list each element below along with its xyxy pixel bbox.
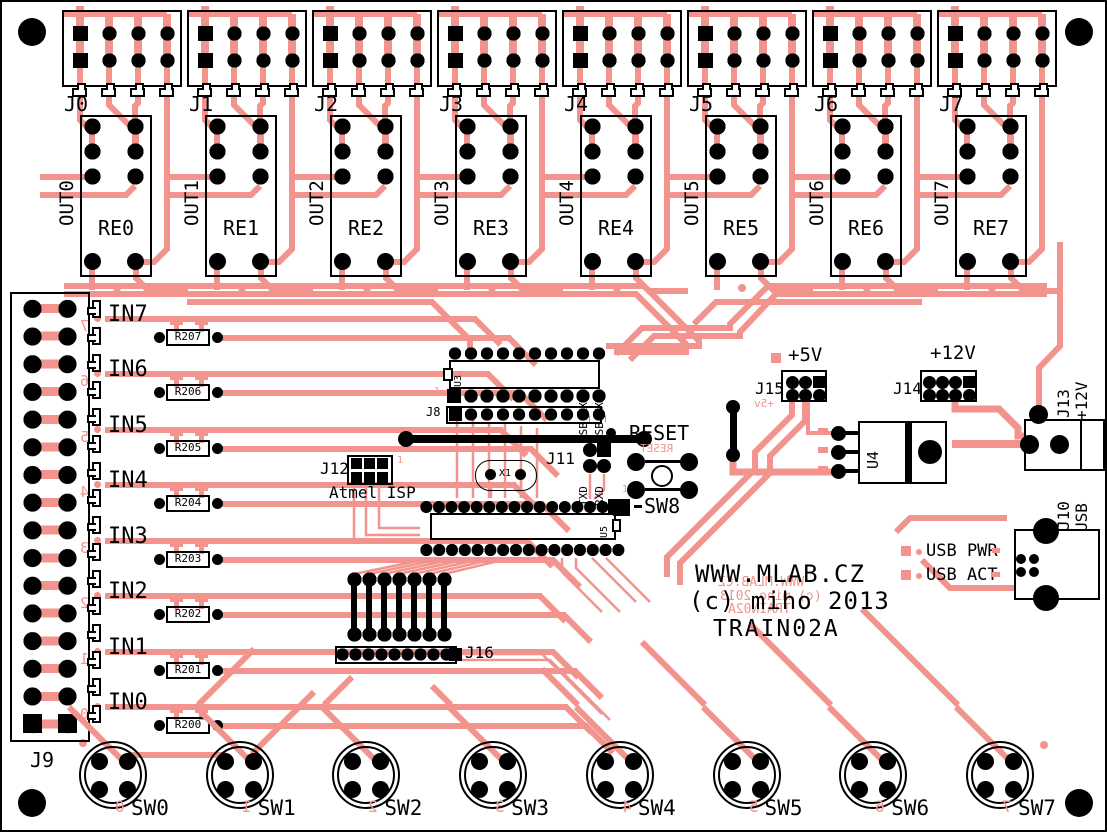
relay-pad	[1002, 253, 1019, 270]
switch-pad	[217, 753, 234, 770]
relay-pads	[834, 114, 851, 189]
relay-channel-block: J3 RE3 OUT3	[437, 2, 562, 302]
connector-pads	[345, 53, 432, 68]
resistor-pad	[212, 387, 223, 398]
jumper-pad	[398, 431, 414, 447]
switch-pad	[879, 781, 896, 798]
u3-pin1-marker: 1	[434, 387, 440, 397]
mcu-notch	[612, 519, 621, 532]
smd-pad	[170, 597, 183, 602]
resistor-pad	[154, 665, 165, 676]
j10-signal-pad	[1029, 554, 1039, 564]
pin-stub	[92, 624, 101, 642]
relay-pad	[627, 253, 644, 270]
u4-pad	[831, 464, 846, 479]
relay-pad	[84, 253, 101, 270]
pin-stub	[92, 543, 101, 561]
switch-block: 2 SW2	[332, 741, 464, 832]
j11-pad	[583, 443, 597, 457]
pin-stub	[505, 88, 520, 97]
output-label: OUT0	[58, 138, 78, 226]
resistor-pad	[212, 498, 223, 509]
pin-stub	[755, 88, 770, 97]
via	[606, 428, 616, 438]
connector-pads	[345, 26, 432, 41]
pin-stub	[130, 88, 145, 97]
smd-pad	[170, 431, 183, 436]
mounting-hole	[1065, 18, 1093, 46]
output-label: OUT4	[558, 138, 578, 226]
output-terminal-block	[812, 10, 932, 87]
j10-signal-pad	[1016, 554, 1026, 564]
connector-pad	[198, 53, 213, 68]
j11-label: J11	[546, 451, 575, 468]
output-terminal-block	[312, 10, 432, 87]
pin-stub	[226, 88, 241, 97]
pin-stub	[92, 300, 101, 318]
j15-pad	[786, 376, 799, 389]
j10-outline	[1014, 529, 1100, 600]
resistor-label: R205	[175, 441, 202, 454]
reset-pad	[680, 481, 698, 499]
connector-pads	[95, 26, 182, 41]
j8-label: J8	[426, 406, 440, 419]
j16-label: J16	[465, 645, 494, 662]
sw8-pin1-marker: 1	[622, 485, 628, 495]
relay-pads	[959, 114, 976, 189]
switch-pad	[372, 753, 389, 770]
pin-stub	[92, 435, 101, 453]
switch-label: SW4	[638, 797, 676, 819]
output-label: OUT2	[308, 138, 328, 226]
smd-pad	[195, 597, 208, 602]
pin-stub	[92, 327, 101, 345]
x1-pad	[515, 469, 526, 480]
wire-jumper-bars	[351, 580, 447, 634]
switch-pad	[625, 781, 642, 798]
title-line1: WWW.MLAB.CZ	[695, 562, 865, 587]
j14-pad	[949, 376, 962, 389]
relay-pad	[752, 253, 769, 270]
pin-stub	[409, 88, 424, 97]
mcu-top-pads	[420, 500, 610, 514]
relay-label: RE2	[330, 218, 402, 239]
connector-label: J0	[64, 94, 88, 115]
resistor-trace	[216, 723, 588, 729]
relay-channel-block: J6 RE6 OUT6	[812, 2, 937, 302]
pin-stub	[92, 354, 101, 372]
mounting-hole	[18, 789, 46, 817]
switch-block: 1 SW1	[206, 741, 338, 832]
switch-pad	[217, 781, 234, 798]
switch-block: 6 SW6	[839, 741, 971, 832]
resistor-pad	[154, 609, 165, 620]
pin-stub	[101, 88, 116, 97]
relay-pads	[1002, 114, 1019, 189]
resistor-pad	[154, 720, 165, 731]
resistor-pad	[154, 387, 165, 398]
switch-label: SW6	[891, 797, 929, 819]
connector-pads	[720, 26, 807, 41]
j12-pin1-marker: 1	[397, 456, 403, 466]
switch-block: 0 SW0	[79, 741, 211, 832]
switch-pad	[344, 753, 361, 770]
pin-stub	[92, 570, 101, 588]
connector-pad	[948, 53, 963, 68]
connector-pin1-pad	[323, 26, 338, 41]
connector-label: J4	[564, 94, 588, 115]
jumper-pad	[726, 448, 740, 462]
switch-pad	[91, 781, 108, 798]
j14-pin1-pad	[963, 376, 975, 388]
pin-stub	[601, 88, 616, 97]
smd-pad	[170, 320, 183, 325]
connector-pin1-pad	[698, 26, 713, 41]
atmel-isp-label: Atmel ISP	[329, 485, 416, 502]
switch-pad	[1005, 781, 1022, 798]
usb-rxd-label: USB_RXD	[578, 384, 590, 442]
switch-pad	[977, 753, 994, 770]
connector-pin1-pad	[573, 26, 588, 41]
relay-pad	[877, 253, 894, 270]
j14-pad	[963, 389, 976, 402]
resistor-label: R206	[175, 385, 202, 398]
relay-pad	[459, 253, 476, 270]
j10-type-label: USB	[1074, 490, 1091, 532]
connector-pads	[470, 26, 557, 41]
resistor-pad	[154, 443, 165, 454]
smd-pad	[195, 486, 208, 491]
relay-channel-block: J7 RE7 OUT7	[937, 2, 1062, 302]
switch-pad	[879, 753, 896, 770]
resistor-pad	[154, 332, 165, 343]
switch-label: SW3	[511, 797, 549, 819]
relay-channel-block: J4 RE4 OUT4	[562, 2, 687, 302]
pcb-board: IN7 7 R207 IN6 6 R206 IN5	[0, 0, 1107, 832]
switch-pad	[91, 753, 108, 770]
input-label: IN6	[108, 358, 148, 381]
resistor-pad	[212, 332, 223, 343]
switch-mirror-digit: 3	[495, 799, 505, 815]
output-terminal-block	[687, 10, 807, 87]
connector-pin1-pad	[948, 26, 963, 41]
switch-mirror-digit: 4	[622, 799, 632, 815]
pin-stub	[92, 651, 101, 669]
smd-pad	[170, 653, 183, 658]
relay-channel-block: J5 RE5 OUT5	[687, 2, 812, 302]
input-label: IN2	[108, 580, 148, 603]
switch-label: SW7	[1018, 797, 1056, 819]
resistor-label: R203	[175, 552, 202, 565]
connector-pad	[73, 53, 88, 68]
usb-txd-label: USB_TXD	[594, 384, 606, 442]
relay-label: RE4	[580, 218, 652, 239]
relay-pad	[334, 253, 351, 270]
output-terminal-block	[62, 10, 182, 87]
relay-pads	[709, 114, 726, 189]
resistor-label: R204	[175, 496, 202, 509]
smd-pad	[195, 542, 208, 547]
title-line3: TRAIN02A	[713, 617, 840, 641]
connector-pad	[323, 53, 338, 68]
j16-pads	[336, 648, 453, 661]
pin-stub	[909, 88, 924, 97]
pin-stub	[726, 88, 741, 97]
output-label: OUT1	[183, 138, 203, 226]
input-trace	[105, 427, 503, 433]
j13-voltage-label: +12V	[1074, 374, 1091, 420]
pin-stub	[92, 462, 101, 480]
pin-stub	[255, 88, 270, 97]
mcu-label: U5	[600, 516, 611, 538]
resistor-pad	[212, 609, 223, 620]
j14-label: J14	[893, 381, 922, 398]
j9-label: J9	[30, 750, 54, 771]
mcu-outline	[430, 513, 616, 540]
resistor-trace	[216, 335, 511, 341]
output-label: OUT7	[933, 138, 953, 226]
usb-act-label: USB ACT	[926, 567, 998, 585]
j12-pad	[377, 472, 388, 483]
output-terminal-block	[937, 10, 1057, 87]
j12-label: J12	[320, 461, 349, 478]
j12-pad	[351, 458, 362, 469]
relay-pad	[584, 253, 601, 270]
relay-pads	[209, 114, 226, 189]
connector-label: J1	[189, 94, 213, 115]
switch-block: 3 SW3	[459, 741, 591, 832]
relay-channel-block: J2 RE2 OUT2	[312, 2, 437, 302]
switch-block: 5 SW5	[713, 741, 845, 832]
connector-label: J5	[689, 94, 713, 115]
j13-pad	[1020, 435, 1039, 454]
relay-label: RE0	[80, 218, 152, 239]
pin-stub	[880, 88, 895, 97]
reset-button-frame	[645, 488, 681, 491]
smd-pad	[195, 653, 208, 658]
pin-stub	[1005, 88, 1020, 97]
mcu-bottom-pads	[420, 543, 625, 557]
resistor-body: R205	[166, 440, 210, 457]
connector-pad	[823, 53, 838, 68]
pin-stub	[851, 88, 866, 97]
switch-pad	[499, 781, 516, 798]
relay-pads	[334, 114, 351, 189]
j8-pin1-pad	[449, 408, 462, 421]
connector-label: J6	[814, 94, 838, 115]
smd-pad	[170, 486, 183, 491]
j9-pin1-pad	[23, 714, 42, 733]
resistor-body: R201	[166, 662, 210, 679]
input-label: IN1	[108, 636, 148, 659]
relay-pad	[252, 253, 269, 270]
j14-pad	[923, 376, 936, 389]
relay-label: RE3	[455, 218, 527, 239]
switch-mirror-digit: 2	[368, 799, 378, 815]
relay-pad	[127, 253, 144, 270]
jumper-bars-bottom-pads	[347, 627, 452, 642]
relay-pad	[834, 253, 851, 270]
output-terminal-block	[562, 10, 682, 87]
connector-pad	[698, 53, 713, 68]
j13-pad	[1029, 405, 1048, 424]
j11-pad	[597, 459, 611, 473]
output-terminal-block	[437, 10, 557, 87]
j12-pad	[364, 472, 375, 483]
connector-pin1-pad	[823, 26, 838, 41]
resistor-pad	[212, 554, 223, 565]
j12-pad	[364, 458, 375, 469]
relay-pads	[459, 114, 476, 189]
relay-pads	[127, 114, 144, 189]
j12-pad	[377, 458, 388, 469]
j15-pad	[799, 389, 812, 402]
mounting-hole	[18, 18, 46, 46]
connector-pin1-pad	[198, 26, 213, 41]
relay-pads	[627, 114, 644, 189]
relay-pads	[752, 114, 769, 189]
pin-stub	[976, 88, 991, 97]
switch-pad	[851, 781, 868, 798]
u4-mounting-hole	[918, 440, 942, 464]
input-label: IN4	[108, 469, 148, 492]
resistor-pad	[154, 554, 165, 565]
smd-pad	[195, 375, 208, 380]
input-label: IN3	[108, 525, 148, 548]
smd-pad	[170, 708, 183, 713]
pin-stub	[784, 88, 799, 97]
relay-pads	[84, 114, 101, 189]
j15-label: J15	[755, 381, 784, 398]
connector-pads	[220, 53, 307, 68]
pin-stub	[284, 88, 299, 97]
switch-pad	[597, 753, 614, 770]
pin-stub	[159, 88, 174, 97]
switch-label: SW2	[384, 797, 422, 819]
reset-button-actuator	[651, 465, 673, 487]
relay-pad	[209, 253, 226, 270]
switch-block: 7 SW7	[966, 741, 1098, 832]
usb-pwr-label: USB PWR	[926, 543, 998, 561]
j16-pin1-pad	[449, 648, 462, 661]
u3-label: U3	[454, 363, 465, 387]
j10-signal-pad	[1029, 567, 1039, 577]
connector-pads	[720, 53, 807, 68]
switch-pad	[344, 781, 361, 798]
pin-stub	[476, 88, 491, 97]
resistor-pad	[212, 665, 223, 676]
u3-top-pads	[447, 347, 607, 360]
j13-pad	[1050, 435, 1069, 454]
input-trace	[105, 316, 477, 322]
input-label: IN5	[108, 414, 148, 437]
pin-stub	[1034, 88, 1049, 97]
j15-pin1-pad	[813, 376, 825, 388]
pin-stub	[380, 88, 395, 97]
relay-pads	[252, 114, 269, 189]
input-trace	[105, 371, 490, 377]
j12-pad	[351, 472, 362, 483]
relay-channel-block: J1 RE1 OUT1	[187, 2, 312, 302]
connector-pads	[970, 53, 1057, 68]
usb-act-trace-bit	[992, 572, 1000, 577]
relay-pads	[584, 114, 601, 189]
relay-pad	[377, 253, 394, 270]
relay-pads	[377, 114, 394, 189]
resistor-label: R201	[175, 663, 202, 676]
reset-pad	[627, 453, 645, 471]
j9-pads-col2	[58, 295, 77, 739]
jumper-pad	[726, 400, 740, 414]
u3-notch	[443, 368, 453, 381]
switch-pad	[471, 753, 488, 770]
output-label: OUT6	[808, 138, 828, 226]
switch-pad	[471, 781, 488, 798]
resistor-label: R207	[175, 330, 202, 343]
switch-pad	[119, 781, 136, 798]
switch-pad	[625, 753, 642, 770]
usb-act-led-dot	[916, 573, 922, 579]
j14-pad	[936, 389, 949, 402]
relay-pad	[959, 253, 976, 270]
j9-pads-col1	[23, 295, 42, 739]
switch-block: 4 SW4	[586, 741, 718, 832]
reset-pad	[627, 481, 645, 499]
pin-stub	[534, 88, 549, 97]
p5v-mirror-label: +5v	[754, 398, 774, 409]
switch-pad	[499, 753, 516, 770]
switch-pad	[597, 781, 614, 798]
resistor-body: R204	[166, 495, 210, 512]
connector-pads	[970, 26, 1057, 41]
smd-pad	[195, 320, 208, 325]
u4-pad	[831, 445, 846, 460]
p5v-label: +5V	[788, 346, 822, 366]
pin-stub	[351, 88, 366, 97]
input-label: IN0	[108, 691, 148, 714]
usb-pwr-led-dot	[916, 549, 922, 555]
relay-pad	[709, 253, 726, 270]
j13-divider	[1080, 419, 1082, 471]
reset-pad	[680, 453, 698, 471]
input-row: IN2 2 R202	[2, 584, 1107, 640]
usb-act-led-pad	[901, 570, 911, 580]
relay-pads	[877, 114, 894, 189]
usb-pwr-trace-bit	[992, 548, 1000, 553]
output-terminal-block	[187, 10, 307, 87]
switch-mirror-digit: 7	[1002, 799, 1012, 815]
switch-pad	[977, 781, 994, 798]
pin-stub	[92, 381, 101, 399]
pin-stub	[92, 597, 101, 615]
x1-label: X1	[499, 469, 511, 480]
connector-pads	[95, 53, 182, 68]
j14-pad	[923, 389, 936, 402]
pin-stub	[92, 516, 101, 534]
switch-pad	[724, 753, 741, 770]
reset-mirror-label: RESET	[640, 443, 673, 454]
resistor-pad	[154, 498, 165, 509]
j10-shield-pad	[1033, 585, 1059, 611]
switch-mirror-digit: 6	[875, 799, 885, 815]
j13-label: J13	[1056, 382, 1073, 418]
connector-pad	[448, 53, 463, 68]
usb-pwr-led-pad	[901, 546, 911, 556]
u4-pad	[831, 426, 846, 441]
input-label: IN7	[108, 303, 148, 326]
reset-button-frame	[645, 460, 681, 463]
sw8-tick	[634, 505, 642, 508]
